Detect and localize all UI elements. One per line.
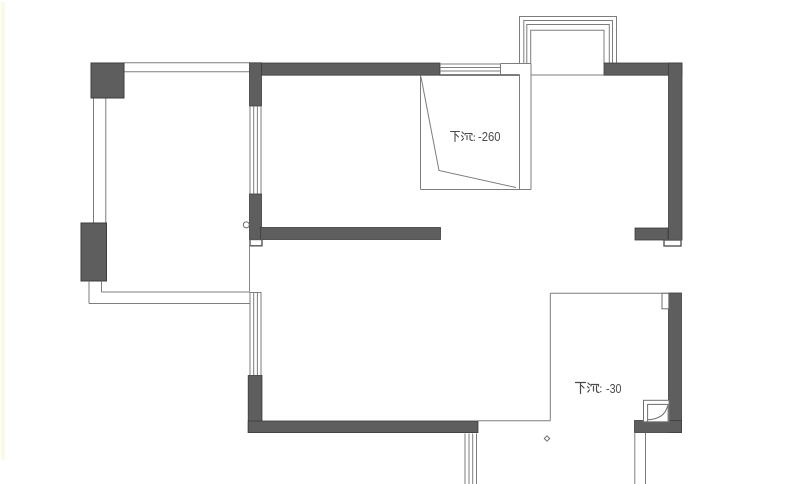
- svg-text:-260: -260: [478, 130, 501, 144]
- svg-text:-30: -30: [606, 382, 622, 396]
